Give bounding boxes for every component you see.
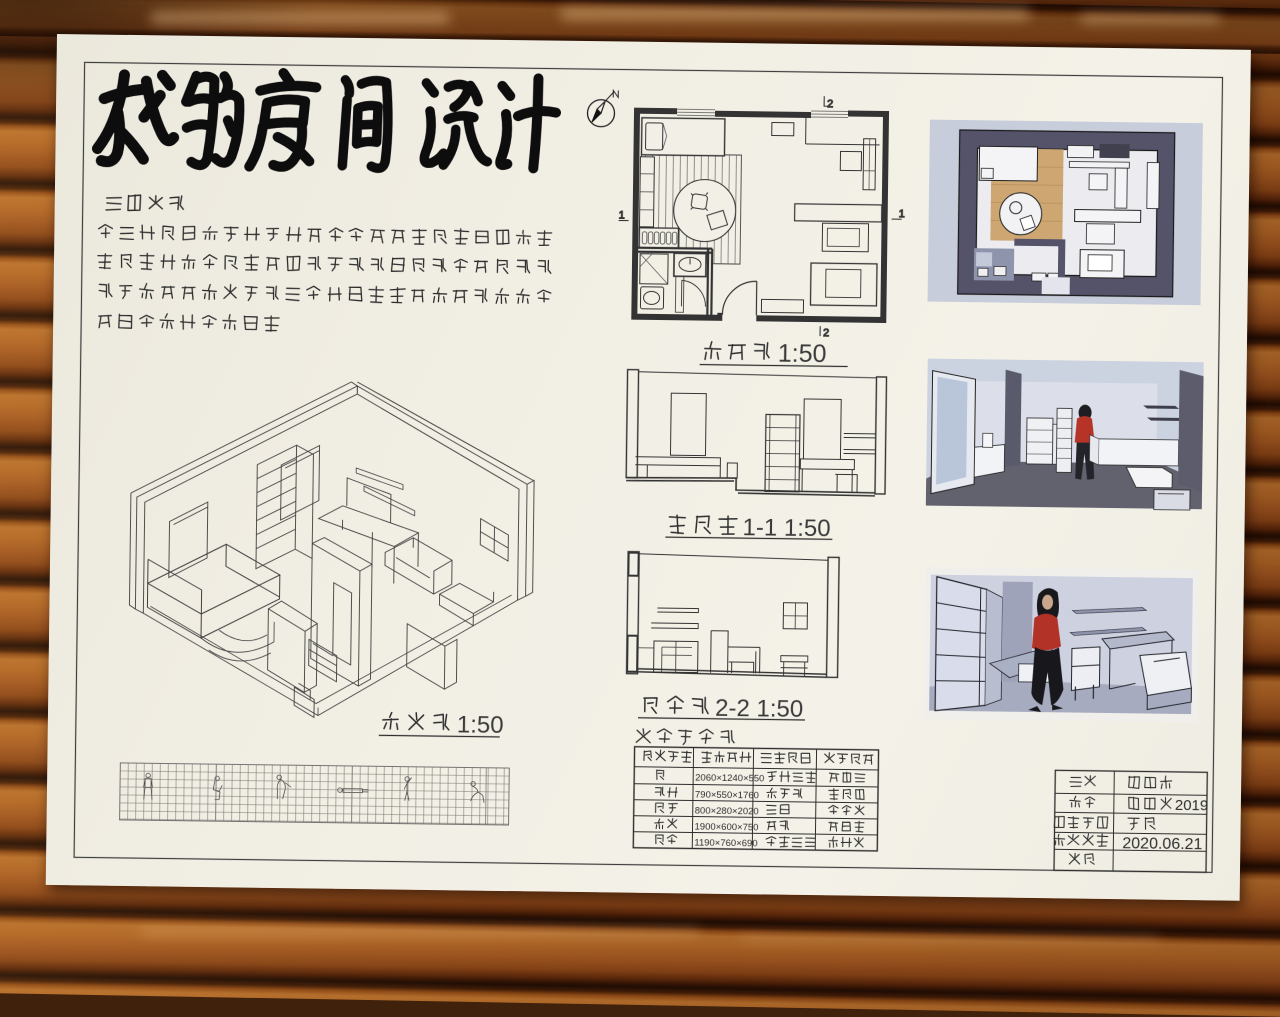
svg-text:1190×760×690: 1190×760×690 xyxy=(694,838,757,850)
svg-text:790×550×1760: 790×550×1760 xyxy=(695,790,759,802)
svg-text:1: 1 xyxy=(619,209,625,221)
svg-text:2: 2 xyxy=(827,98,833,110)
svg-text:1:50: 1:50 xyxy=(457,711,504,739)
svg-text:2019: 2019 xyxy=(1175,797,1209,814)
svg-text:2: 2 xyxy=(823,327,829,339)
svg-text:1900×600×750: 1900×600×750 xyxy=(694,822,758,834)
svg-text:1:50: 1:50 xyxy=(778,340,827,369)
svg-text:2060×1240×550: 2060×1240×550 xyxy=(695,773,764,785)
svg-text:2020.06.21: 2020.06.21 xyxy=(1122,835,1202,853)
svg-text:800×280×2020: 800×280×2020 xyxy=(695,806,759,818)
svg-text:1: 1 xyxy=(899,208,905,220)
